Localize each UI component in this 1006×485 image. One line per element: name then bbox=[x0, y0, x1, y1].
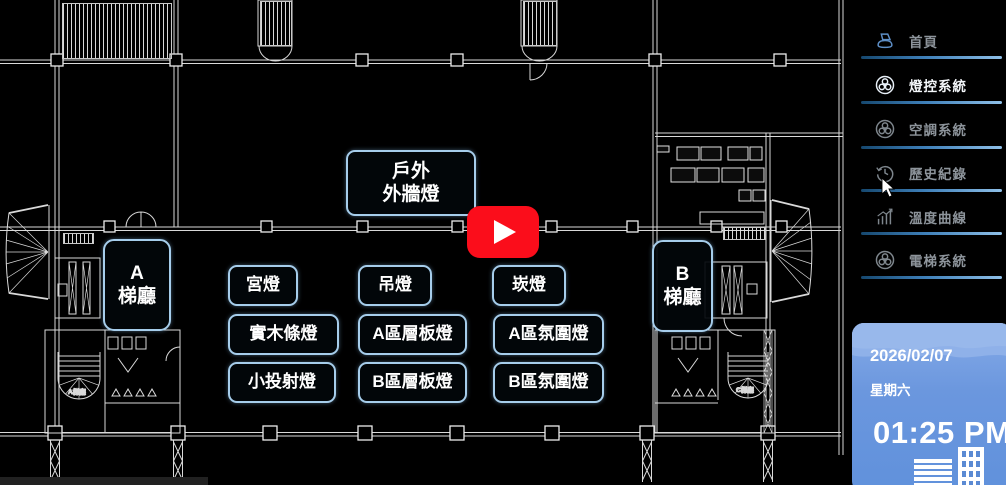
sidebar-label-home: 首頁 bbox=[909, 31, 938, 51]
light-button-zone-a-ambient[interactable]: A區氛圍燈 bbox=[493, 314, 604, 355]
buildings-icon bbox=[912, 441, 1006, 485]
sidebar-item-temperature-curve[interactable]: 溫度曲線 bbox=[850, 204, 1006, 230]
sidebar-separator bbox=[861, 232, 1002, 235]
sidebar-item-elevator-system[interactable]: 電梯系統 bbox=[850, 247, 1006, 273]
video-progress-strip[interactable] bbox=[0, 477, 208, 485]
light-button-outdoor-line2: 外牆燈 bbox=[382, 183, 439, 206]
clock-weekday: 星期六 bbox=[870, 379, 911, 399]
plan-label-stair-c: C梯廳 bbox=[736, 385, 754, 394]
light-button-zone-a-shelf[interactable]: A區層板燈 bbox=[358, 314, 467, 355]
sidebar-label-history: 歷史紀錄 bbox=[909, 163, 967, 183]
sidebar-item-home[interactable]: 首頁 bbox=[850, 28, 1006, 54]
sidebar-separator bbox=[861, 56, 1002, 59]
plan-hatch-stair-top-right bbox=[523, 1, 557, 46]
fan-icon bbox=[874, 118, 896, 140]
sidebar-separator bbox=[861, 101, 1002, 104]
light-button-recessed-lamp[interactable]: 崁燈 bbox=[492, 265, 566, 306]
sidebar-separator bbox=[861, 276, 1002, 279]
plan-hatch-ramp bbox=[62, 3, 172, 59]
light-button-palace-lamp[interactable]: 宮燈 bbox=[228, 265, 298, 306]
home-icon bbox=[874, 30, 896, 52]
sidebar-item-lighting-system[interactable]: 燈控系統 bbox=[850, 72, 1006, 98]
sidebar-item-history[interactable]: 歷史紀錄 bbox=[850, 160, 1006, 186]
clock-date: 2026/02/07 bbox=[870, 347, 953, 366]
plan-hatch-left-strip bbox=[63, 233, 94, 244]
light-button-pendant-lamp[interactable]: 吊燈 bbox=[358, 265, 432, 306]
lobby-b-button[interactable]: B 梯廳 bbox=[652, 240, 713, 332]
light-button-outdoor-line1: 戶外 bbox=[392, 160, 430, 183]
lobby-a-button[interactable]: A 梯廳 bbox=[103, 239, 171, 331]
sidebar-separator bbox=[861, 146, 1002, 149]
sidebar-item-hvac-system[interactable]: 空調系統 bbox=[850, 116, 1006, 142]
fan-icon bbox=[874, 74, 896, 96]
lobby-b-line2: 梯廳 bbox=[663, 286, 701, 309]
light-button-zone-b-ambient[interactable]: B區氛圍燈 bbox=[493, 362, 604, 403]
light-button-small-projector[interactable]: 小投射燈 bbox=[228, 362, 336, 403]
mouse-cursor bbox=[881, 177, 896, 199]
plan-hatch-right-strip bbox=[723, 227, 766, 240]
chart-icon bbox=[874, 206, 896, 228]
lobby-a-line2: 梯廳 bbox=[118, 285, 156, 308]
sidebar-label-hvac-system: 空調系統 bbox=[909, 119, 967, 139]
sidebar-label-temperature-curve: 溫度曲線 bbox=[909, 207, 967, 227]
youtube-play-icon bbox=[467, 206, 539, 258]
youtube-play-button[interactable] bbox=[467, 206, 539, 258]
plan-hatch-stair-top-left bbox=[260, 1, 292, 46]
plan-label-stair-a: A梯廳 bbox=[68, 387, 86, 396]
lobby-a-line1: A bbox=[130, 262, 144, 285]
clock-panel: 2026/02/07 星期六 01:25 PM bbox=[852, 323, 1006, 485]
light-button-wood-strip[interactable]: 實木條燈 bbox=[228, 314, 339, 355]
light-button-zone-b-shelf[interactable]: B區層板燈 bbox=[358, 362, 467, 403]
lighting-control-screen: A梯廳 C梯廳 戶外 外牆燈 A 梯廳 B 梯廳 宮燈 吊燈 崁燈 實木條燈 A… bbox=[0, 0, 1006, 485]
sidebar-label-elevator-system: 電梯系統 bbox=[909, 250, 967, 270]
light-button-outdoor-wall[interactable]: 戶外 外牆燈 bbox=[346, 150, 476, 216]
lobby-b-line1: B bbox=[676, 263, 690, 286]
fan-icon bbox=[874, 249, 896, 271]
sidebar-label-lighting-system: 燈控系統 bbox=[909, 75, 967, 95]
